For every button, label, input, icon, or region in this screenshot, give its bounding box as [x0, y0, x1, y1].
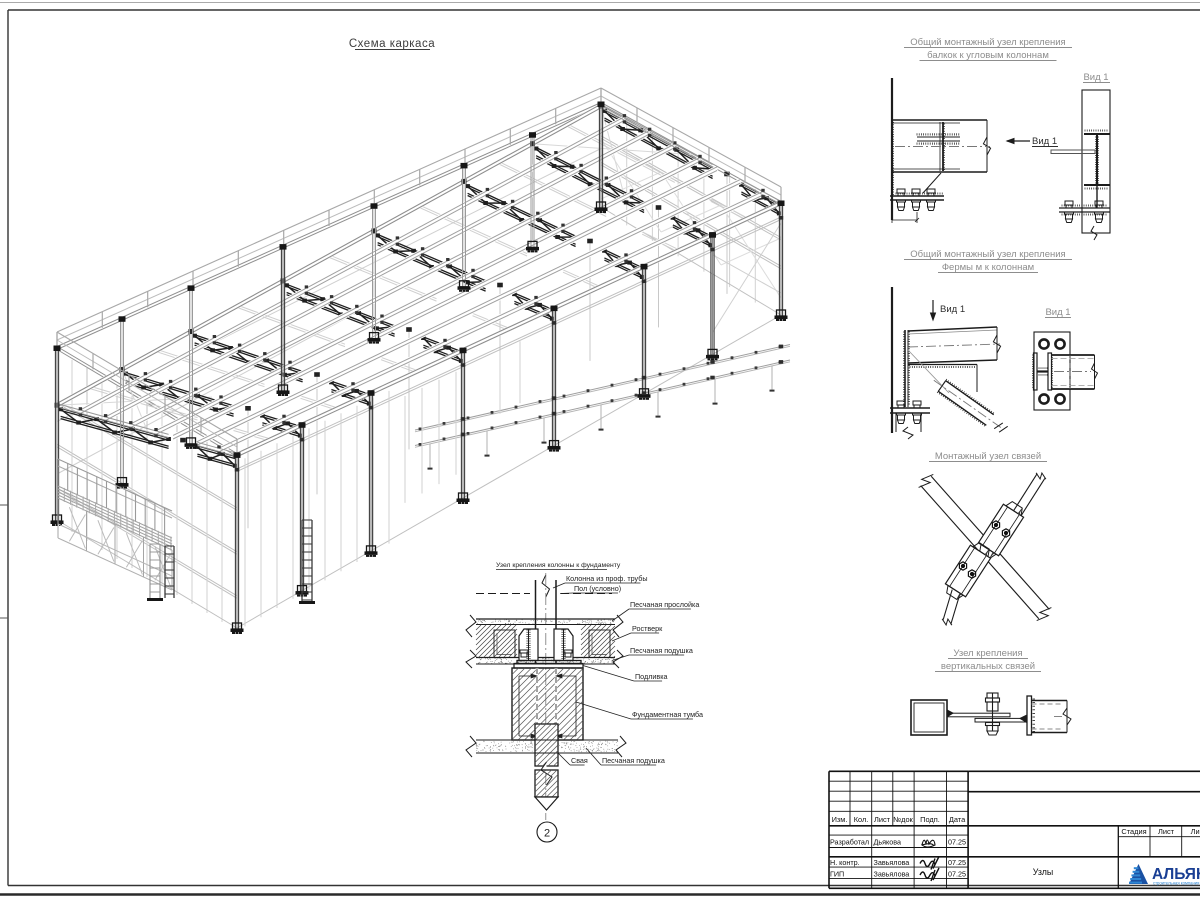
- svg-text:Песчаная прослойка: Песчаная прослойка: [630, 600, 699, 609]
- svg-text:07.25: 07.25: [948, 858, 966, 867]
- svg-text:балкок к угловым колоннам: балкок к угловым колоннам: [927, 50, 1049, 61]
- svg-text:Узлы: Узлы: [1033, 867, 1053, 877]
- svg-text:Узел крепления: Узел крепления: [953, 648, 1022, 659]
- svg-text:Разработал: Разработал: [830, 838, 869, 847]
- svg-text:Дьякова: Дьякова: [874, 838, 901, 847]
- svg-text:Общий монтажный узел крепления: Общий монтажный узел крепления: [910, 249, 1065, 260]
- svg-text:Н. контр.: Н. контр.: [830, 858, 860, 867]
- svg-text:Вид 1: Вид 1: [940, 304, 965, 315]
- svg-text:Узел крепления колонны к фунда: Узел крепления колонны к фундаменту: [496, 562, 621, 569]
- svg-text:Изм.: Изм.: [832, 815, 848, 824]
- svg-text:Свая: Свая: [571, 756, 588, 765]
- svg-text:Лис: Лис: [1191, 827, 1200, 836]
- svg-text:вертикальных связей: вертикальных связей: [941, 661, 1035, 672]
- svg-text:Фермы м к колоннам: Фермы м к колоннам: [942, 262, 1034, 273]
- svg-text:Кол.: Кол.: [854, 815, 869, 824]
- svg-text:Колонна из проф. трубы: Колонна из проф. трубы: [566, 574, 648, 583]
- svg-text:07.25: 07.25: [948, 838, 966, 847]
- svg-text:Вид 1: Вид 1: [1083, 72, 1108, 83]
- svg-text:ГИП: ГИП: [830, 870, 844, 879]
- svg-text:Схема каркаса: Схема каркаса: [349, 38, 435, 50]
- svg-text:Монтажный узел связей: Монтажный узел связей: [935, 451, 1041, 462]
- svg-text:Пол (условно): Пол (условно): [574, 584, 621, 593]
- svg-text:Лист: Лист: [1158, 827, 1175, 836]
- svg-text:строительная компания: строительная компания: [1153, 881, 1199, 886]
- svg-text:Общий монтажный узел крепления: Общий монтажный узел крепления: [910, 37, 1065, 48]
- svg-text:07.25: 07.25: [948, 870, 966, 879]
- svg-text:Вид 1: Вид 1: [1032, 136, 1057, 147]
- svg-text:Подп.: Подп.: [920, 815, 940, 824]
- svg-text:Подливка: Подливка: [635, 672, 668, 681]
- svg-text:Ростверк: Ростверк: [632, 624, 663, 633]
- svg-text:Песчаная подушка: Песчаная подушка: [602, 756, 665, 765]
- svg-text:Завьялова: Завьялова: [874, 858, 910, 867]
- svg-text:2: 2: [544, 828, 550, 840]
- svg-text:Вид 1: Вид 1: [1045, 307, 1070, 318]
- svg-text:№док: №док: [893, 815, 913, 824]
- svg-text:Дата: Дата: [949, 815, 966, 824]
- svg-text:Песчаная подушка: Песчаная подушка: [630, 646, 693, 655]
- svg-text:Лист: Лист: [874, 815, 891, 824]
- svg-text:Завьялова: Завьялова: [874, 870, 910, 879]
- svg-text:Стадия: Стадия: [1121, 827, 1146, 836]
- svg-text:Фундаментная тумба: Фундаментная тумба: [632, 710, 703, 719]
